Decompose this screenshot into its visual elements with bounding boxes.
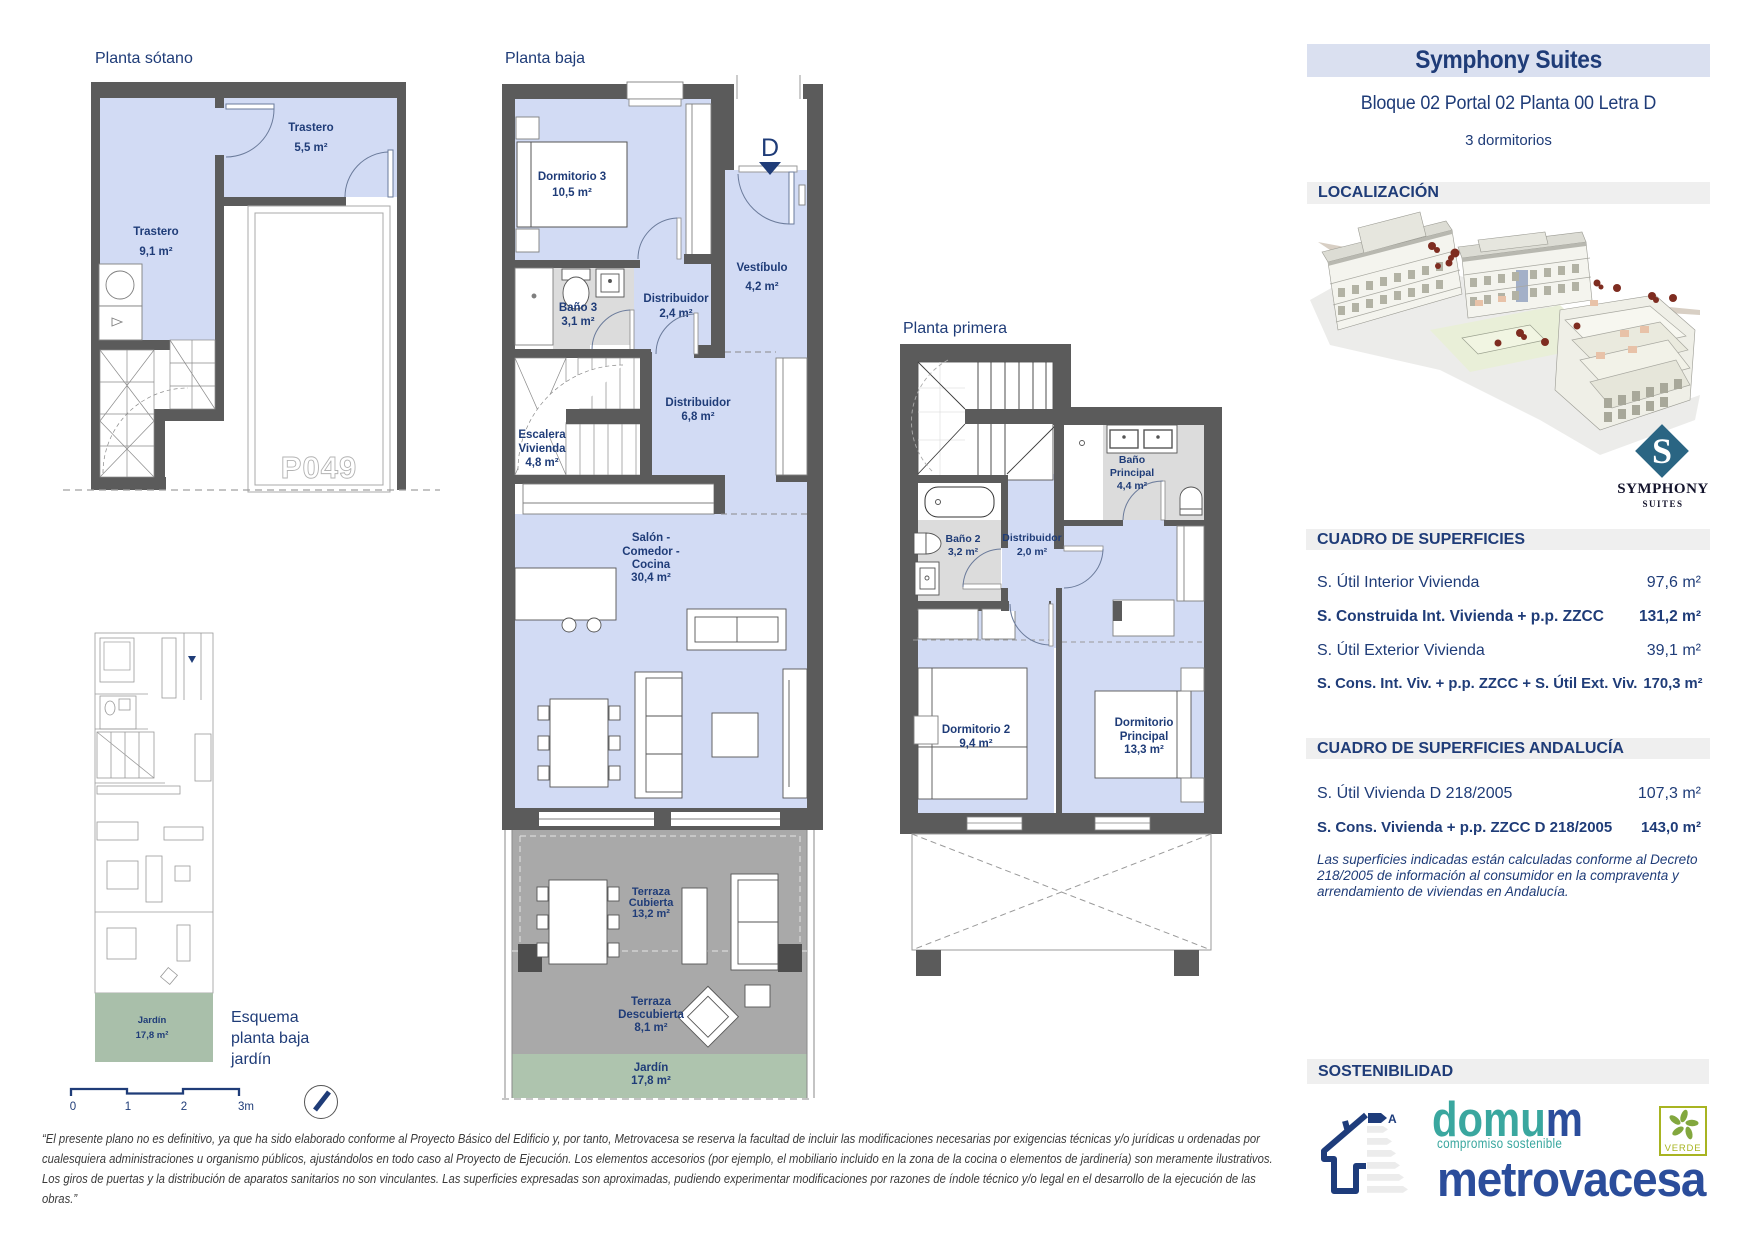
svg-text:9,1 m²: 9,1 m² bbox=[139, 246, 172, 258]
svg-text:S: S bbox=[1652, 431, 1672, 471]
svg-text:SYMPHONY: SYMPHONY bbox=[1617, 481, 1709, 497]
svg-text:Planta primera: Planta primera bbox=[903, 320, 1007, 337]
svg-text:Baño 3: Baño 3 bbox=[559, 302, 597, 314]
svg-text:Escalera: Escalera bbox=[518, 429, 566, 441]
svg-text:6,8 m²: 6,8 m² bbox=[681, 411, 714, 423]
svg-text:13,2 m²: 13,2 m² bbox=[632, 908, 670, 920]
svg-text:1: 1 bbox=[125, 1101, 131, 1113]
svg-text:2,0 m²: 2,0 m² bbox=[1017, 546, 1048, 558]
svg-text:4,4 m²: 4,4 m² bbox=[1117, 480, 1148, 492]
svg-text:Terraza: Terraza bbox=[631, 996, 672, 1008]
svg-text:Baño 2: Baño 2 bbox=[945, 533, 980, 545]
svg-text:compromiso sostenible: compromiso sostenible bbox=[1437, 1136, 1562, 1151]
svg-text:Planta baja: Planta baja bbox=[505, 50, 585, 67]
svg-text:10,5 m²: 10,5 m² bbox=[552, 187, 592, 199]
svg-text:2: 2 bbox=[181, 1101, 187, 1113]
svg-text:Distribuidor: Distribuidor bbox=[643, 293, 709, 305]
svg-text:Jardín: Jardín bbox=[634, 1062, 669, 1074]
svg-text:planta baja: planta baja bbox=[231, 1030, 309, 1047]
svg-text:Dormitorio 3: Dormitorio 3 bbox=[538, 171, 606, 183]
svg-text:Salón -: Salón - bbox=[632, 532, 671, 544]
svg-text:Esquema: Esquema bbox=[231, 1009, 299, 1026]
svg-text:8,1 m²: 8,1 m² bbox=[634, 1022, 667, 1034]
svg-text:17,8 m²: 17,8 m² bbox=[136, 1030, 169, 1041]
svg-text:Trastero: Trastero bbox=[288, 122, 333, 134]
svg-text:Jardín: Jardín bbox=[138, 1015, 167, 1026]
svg-text:Dormitorio 2: Dormitorio 2 bbox=[942, 724, 1010, 736]
svg-text:jardín: jardín bbox=[230, 1051, 271, 1068]
svg-text:Cocina: Cocina bbox=[632, 559, 671, 571]
svg-text:Comedor -: Comedor - bbox=[622, 546, 680, 558]
svg-text:17,8 m²: 17,8 m² bbox=[631, 1075, 671, 1087]
svg-text:Dormitorio: Dormitorio bbox=[1115, 717, 1174, 729]
svg-text:Baño: Baño bbox=[1119, 454, 1145, 466]
svg-text:Principal: Principal bbox=[1120, 731, 1169, 743]
svg-text:VERDE: VERDE bbox=[1665, 1143, 1702, 1154]
svg-text:Distribuidor: Distribuidor bbox=[665, 397, 731, 409]
svg-text:2,4 m²: 2,4 m² bbox=[659, 308, 692, 320]
svg-text:3,2 m²: 3,2 m² bbox=[948, 546, 979, 558]
svg-text:Vivienda: Vivienda bbox=[518, 443, 566, 455]
svg-text:4,2 m²: 4,2 m² bbox=[745, 281, 778, 293]
svg-text:30,4 m²: 30,4 m² bbox=[631, 572, 671, 584]
svg-text:Descubierta: Descubierta bbox=[618, 1009, 684, 1021]
svg-text:9,4 m²: 9,4 m² bbox=[959, 738, 992, 750]
svg-text:Planta sótano: Planta sótano bbox=[95, 50, 193, 67]
svg-text:Distribuidor: Distribuidor bbox=[1002, 532, 1062, 544]
svg-text:A: A bbox=[1388, 1112, 1397, 1126]
svg-text:13,3 m²: 13,3 m² bbox=[1124, 744, 1164, 756]
svg-text:Trastero: Trastero bbox=[133, 226, 178, 238]
svg-text:metrovacesa: metrovacesa bbox=[1437, 1153, 1707, 1208]
svg-text:3m: 3m bbox=[238, 1101, 254, 1113]
svg-text:D: D bbox=[761, 134, 779, 162]
svg-text:3,1 m²: 3,1 m² bbox=[561, 316, 594, 328]
svg-text:5,5 m²: 5,5 m² bbox=[294, 142, 327, 154]
svg-text:Vestíbulo: Vestíbulo bbox=[736, 262, 787, 274]
svg-text:4,8 m²: 4,8 m² bbox=[525, 457, 558, 469]
svg-text:Principal: Principal bbox=[1110, 467, 1154, 479]
svg-text:SUITES: SUITES bbox=[1642, 499, 1683, 509]
svg-text:0: 0 bbox=[70, 1101, 76, 1113]
svg-text:P049: P049 bbox=[281, 450, 357, 485]
